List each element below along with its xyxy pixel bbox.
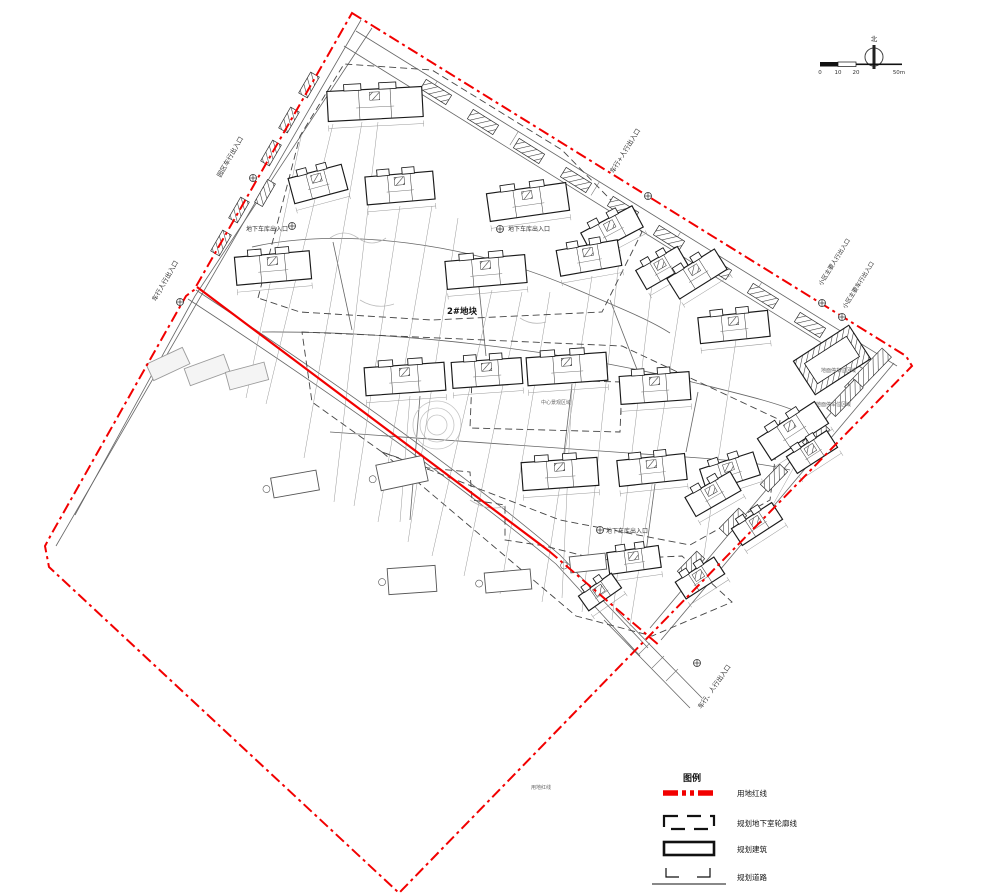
building-core [480,261,491,270]
entrance-left-bottom-label: 车行人行出入口 [150,259,181,303]
parking-bay [467,109,498,134]
landscape-pond-arc [420,408,454,442]
building-core [561,358,572,367]
parking-bay [513,138,544,163]
planned-building [697,304,771,353]
dimension-tick [744,549,747,554]
dimension-tick [840,451,843,456]
building-bay [379,82,396,89]
building-bay [657,367,670,374]
building-bay [408,358,423,365]
planned-building [326,81,423,132]
road-line [333,242,352,330]
planned-building [234,245,313,295]
scale-bar: 0 10 20 50m [818,62,905,76]
entrance-symbol [839,314,846,321]
building-dimension-line [448,289,528,296]
building-footprint [234,251,311,285]
dimension-tick [527,286,528,292]
dimension-tick [620,490,621,496]
building-core [649,377,660,386]
building-bay [653,449,666,457]
building-core [267,257,278,266]
planned-building [521,451,600,500]
building-footprint [526,352,608,386]
building-core [728,317,739,326]
building-footprint [184,354,230,385]
dimension-tick [237,289,238,295]
building-core [369,92,379,101]
building-footprint [445,255,527,290]
dimension-tick [435,203,436,209]
building-bay [402,167,415,175]
planned-building [486,177,571,232]
building-footprint [619,372,691,405]
landscape-path [520,318,546,323]
building-footprint [556,240,622,276]
existing-building [261,470,319,499]
legend-item-label-road: 规划道路 [737,872,767,882]
parking-note-b: 地面停车位区域 [816,401,851,408]
parking-note-a: 地面停车位区域 [821,367,856,374]
north-label: 北 [871,35,878,43]
redline-note: 用地红线 [531,784,551,791]
building-dimension-line [329,123,424,128]
dimension-tick [666,669,678,681]
dimension-tick [624,591,627,596]
buildings-layer [146,81,870,619]
entrance-right-ped-label: 小区主要人行出入口 [817,237,852,287]
dimension-tick [638,643,650,655]
dimension-tick [701,348,702,354]
building-dimension-line [453,391,523,396]
dimension-tick [831,427,834,432]
legend-item-label-redline: 用地红线 [737,788,767,798]
building-bay [589,237,601,245]
annotation-text-layer: 2#地块 园区车行出入口 地下车库出入口 车行人行出入口 车行+人行出入口 小区… [150,127,876,791]
garage-lower-label: 地下车库出入口 [606,527,648,535]
existing-building [560,553,607,574]
planned-building [451,352,524,399]
entrance-left-garage-label: 地下车库出入口 [246,225,288,233]
building-dimension-line [701,343,771,350]
building-core [646,460,657,469]
parking-bay [747,283,778,308]
building-footprint [271,470,320,498]
planned-building [672,552,730,607]
parking-bay [255,179,276,206]
dimension-tick [368,209,369,215]
building-number-bubble [262,485,270,493]
parking-bay [827,379,863,416]
entrance-symbol [497,226,504,233]
legend-road-symbol [652,868,726,884]
building-dimension-line [622,407,692,412]
building-footprint [365,171,435,205]
planned-building [555,234,623,286]
building-footprint [451,358,523,389]
existing-building [367,455,429,492]
site-plan-svg: 2#地块 园区车行出入口 地下车库出入口 车行人行出入口 车行+人行出入口 小区… [0,0,984,896]
dimension-tick [312,283,313,289]
road-line [604,620,690,708]
dimension-tick [448,293,449,299]
site-plan-canvas: 2#地块 园区车行出入口 地下车库出入口 车行人行出入口 车行+人行出入口 小区… [0,0,984,896]
parking-bay [794,312,825,337]
dimension-line [542,276,592,602]
building-bay [634,542,644,550]
entrance-right-veh-label: 小区主要车行出入口 [841,260,876,310]
parking-bay [299,72,320,98]
building-footprint [617,454,687,487]
building-core [554,463,565,472]
existing-building [378,565,437,595]
dimension-tick [771,340,772,346]
entrance-top-right-label: 车行+人行出入口 [608,127,643,175]
building-bay [570,348,585,355]
building-core [522,190,533,199]
scale-tick-10: 10 [835,70,842,76]
dimension-tick [729,273,732,278]
entrance-symbol [250,175,257,182]
entrance-symbol [645,193,652,200]
building-bay [735,306,748,314]
building-bay [488,250,503,258]
scale-tick-0: 0 [818,70,822,76]
building-dimension-line [368,206,436,212]
building-footprint [484,569,532,593]
legend-item-label-building: 规划建筑 [737,844,767,854]
planned-building [287,159,351,214]
building-number-bubble [378,578,385,585]
parking-bays-layer [211,72,892,579]
entrance-symbol [597,527,604,534]
entrance-symbol [289,223,296,230]
building-core [399,368,410,377]
building-dimension-line [529,387,609,393]
building-footprint [364,362,446,396]
building-dimension-line [524,492,600,497]
building-number-bubble [475,580,483,588]
entrance-symbol [694,660,701,667]
compass-and-scale: 北 0 10 20 50m [818,35,905,76]
dimension-line [464,292,522,576]
planned-building [444,249,528,300]
building-footprint [521,457,599,490]
road-line [610,300,638,372]
dimension-tick [652,656,664,668]
entrance-symbol [177,299,184,306]
building-dimension-line [367,397,447,403]
dimension-line [500,292,550,594]
building-dimension-line [237,286,312,293]
building-core [394,177,405,186]
planned-building [619,366,692,415]
legend-title: 图例 [683,772,701,784]
building-core [628,551,639,560]
road-line [616,610,702,698]
dimension-line [432,290,492,556]
plot-label: 2#地块 [447,306,478,317]
parking-bay [653,225,684,250]
dimension-tick [591,614,594,619]
planned-building [728,498,788,554]
building-core [582,247,593,257]
existing-building [475,569,532,594]
building-footprint [486,183,569,222]
building-footprint [376,455,428,490]
building-bay [562,453,576,460]
building-number-bubble [369,475,377,483]
dimension-tick [682,302,685,307]
dimension-tick [727,577,730,582]
road-line [56,20,361,546]
building-dimension-line [611,574,662,581]
landscape-pond-arc [427,415,447,435]
road-line [75,296,195,515]
dimension-tick [785,523,788,528]
legend: 图例 用地红线 规划地下室轮廓线 规划建筑 规划道路 [652,772,797,884]
entrance-bottom-right-label: 车行、人行出入口 [695,663,732,711]
existing-building [225,362,268,390]
legend-building-symbol [664,842,714,855]
center-green-note: 中心景观区域 [541,399,571,406]
landscape-path [360,300,394,306]
garage-center-label: 地下车库出入口 [508,225,550,233]
building-bay [489,353,502,360]
road-line [686,392,698,452]
dimension-tick [698,520,701,525]
entrance-left-top-label: 园区车行出入口 [215,135,246,179]
entrance-symbol [819,300,826,307]
building-footprint [698,310,770,343]
building-core [481,363,492,372]
building-bay [529,180,544,188]
scale-tick-20: 20 [853,70,860,76]
building-footprint [569,553,606,573]
dimension-tick [743,494,746,499]
legend-item-label-basement: 规划地下室轮廓线 [737,818,797,828]
building-footprint [225,362,268,390]
building-bay [275,247,289,255]
legend-basement-symbol [664,816,714,829]
building-footprint [387,565,437,594]
dimension-tick [688,483,689,489]
planned-building [526,346,609,395]
existing-building [184,354,230,385]
planned-building [364,165,436,215]
building-bay [566,241,578,249]
scale-tick-end: 50m [893,70,905,76]
